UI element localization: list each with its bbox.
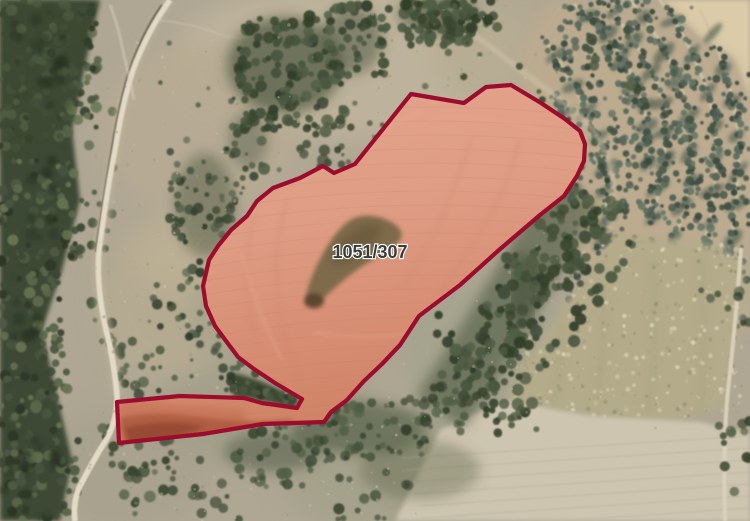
svg-text:1051/307: 1051/307 xyxy=(332,242,407,262)
